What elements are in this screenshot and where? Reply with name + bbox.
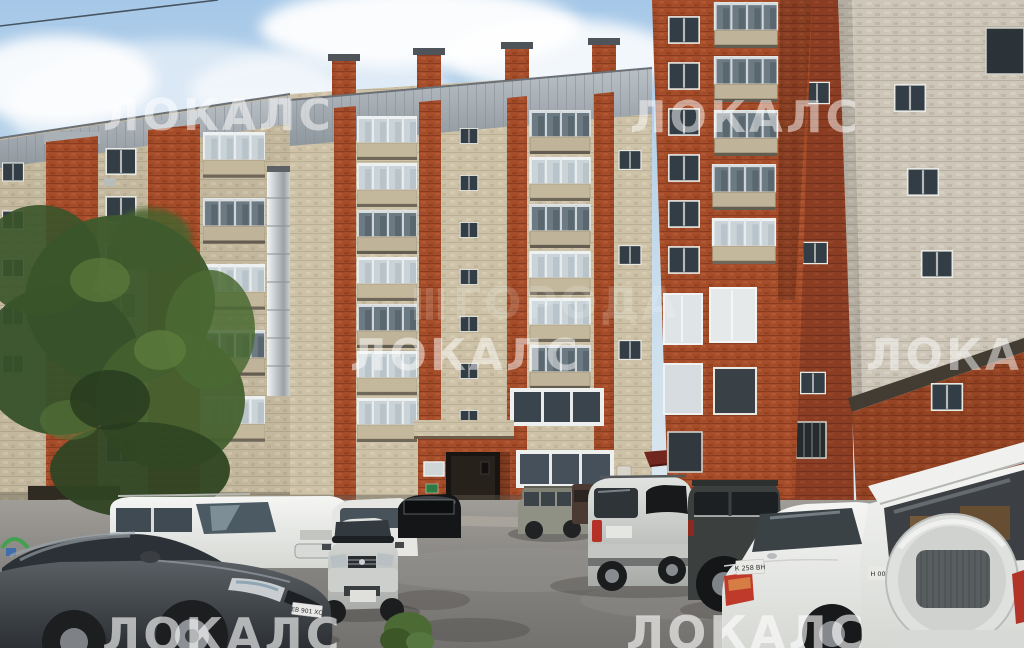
balcony [530,251,590,295]
balcony [530,204,590,248]
license-plate-text: К 258 ВН [735,563,766,573]
glazed-balcony [713,218,776,264]
porch-window [424,462,444,476]
barred-window [796,422,826,458]
photo-canvas: К 258 ВН Н 00 [0,0,1024,648]
balcony [357,304,417,348]
balcony [530,157,590,201]
building-center [290,38,698,540]
license-plate [350,590,376,602]
taillight [592,520,602,542]
building-right-tower [652,0,812,500]
balcony [357,257,417,301]
entrance-sign [426,484,438,493]
ac-unit [104,178,116,186]
balcony [357,398,417,442]
license-plate [606,526,632,538]
balcony [530,298,590,342]
glazed-balcony [715,56,778,102]
balcony [357,210,417,254]
license-plate-text: Н 00 [870,570,885,578]
silver-tall-suv [588,476,696,591]
window-large [510,388,604,426]
balcony [203,132,265,177]
glazed-balcony [715,110,778,156]
metal-chute [267,170,291,396]
balcony [530,110,590,154]
wall-sign [617,466,631,476]
balcony [357,351,417,395]
balcony [357,116,417,160]
balcony [203,198,265,243]
brick-pilaster [334,106,356,508]
hood-deflector [332,536,394,543]
glazed-balcony [715,2,778,48]
balcony [530,345,590,389]
black-crossover [398,494,461,538]
photo-scene: К 258 ВН Н 00 [0,0,1024,648]
glazed-balcony [713,164,776,210]
balcony [357,163,417,207]
